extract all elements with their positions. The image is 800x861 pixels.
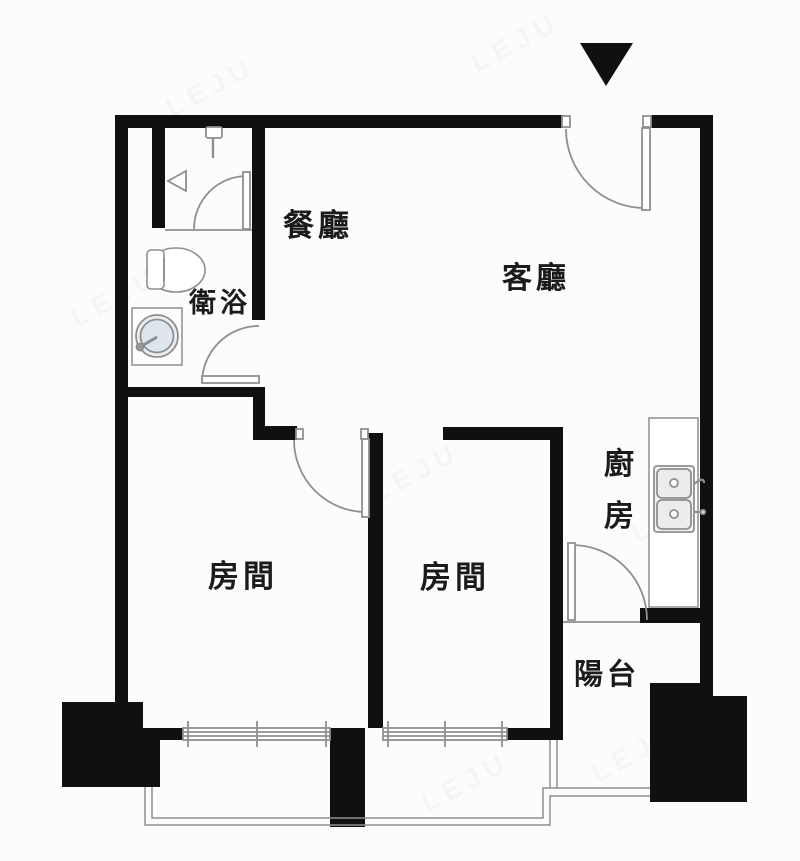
room-label-bathroom: 衛浴 — [188, 287, 251, 318]
wall — [143, 728, 160, 787]
bathroom-door-arc — [202, 326, 259, 383]
window — [383, 721, 507, 747]
entrance-door-arc — [566, 129, 645, 208]
door-jamb — [643, 116, 651, 127]
watermark-text: LEJU — [161, 51, 261, 123]
floorplan-canvas: LEJU LEJU LEJU LEJU LEJU LEJU LEJU — [0, 0, 800, 861]
wall — [252, 127, 265, 320]
toilet — [147, 248, 205, 292]
room-label-dining: 餐廳 — [283, 208, 353, 243]
shower-symbol — [168, 171, 186, 191]
watermark-text: LEJU — [416, 746, 516, 818]
bedroom1-door-panel — [362, 439, 369, 517]
kitchen-door-panel — [568, 543, 575, 620]
wall — [160, 728, 183, 740]
entrance-door-panel — [642, 128, 650, 210]
column-block — [713, 696, 747, 802]
wall — [152, 127, 165, 228]
kitchen-counter — [649, 418, 705, 607]
room-label-bedroom-left: 房間 — [208, 559, 278, 594]
shower-door-panel — [243, 172, 250, 229]
sink-drain — [670, 510, 678, 518]
room-label-balcony: 陽台 — [574, 657, 640, 691]
room-label-bedroom-right: 房間 — [420, 560, 490, 595]
railing — [145, 740, 650, 825]
wall — [550, 427, 563, 740]
room-label-living: 客廳 — [502, 261, 570, 295]
entrance-arrow-icon — [580, 43, 633, 86]
faucet-icon — [137, 344, 144, 351]
faucet-icon — [701, 510, 705, 514]
wall — [368, 433, 383, 728]
shower-fixture — [168, 127, 222, 191]
bedroom1-door-arc — [294, 440, 366, 512]
wall — [507, 728, 553, 740]
bathroom-sink — [132, 308, 182, 365]
column-block — [62, 702, 143, 787]
column-block — [650, 683, 713, 802]
wall — [115, 115, 563, 128]
bathroom-door-panel — [202, 376, 259, 383]
watermark-text: LEJU — [466, 6, 566, 78]
wall — [115, 115, 128, 702]
door-jamb — [296, 429, 303, 439]
wall — [330, 728, 365, 827]
wall — [700, 115, 713, 683]
door-jamb — [361, 429, 368, 439]
shower-door-arc — [194, 176, 247, 229]
floorplan-svg: LEJU LEJU LEJU LEJU LEJU LEJU LEJU — [0, 0, 800, 861]
kitchen-door-arc — [572, 545, 647, 620]
wall — [128, 387, 265, 397]
window — [183, 721, 330, 747]
wall — [443, 427, 563, 440]
wall — [253, 426, 297, 440]
sink-drain — [670, 479, 678, 487]
wall — [640, 608, 700, 623]
room-label-kitchen-1: 廚 — [604, 447, 638, 481]
door-jamb — [562, 116, 570, 127]
room-label-kitchen-2: 房 — [604, 500, 638, 533]
